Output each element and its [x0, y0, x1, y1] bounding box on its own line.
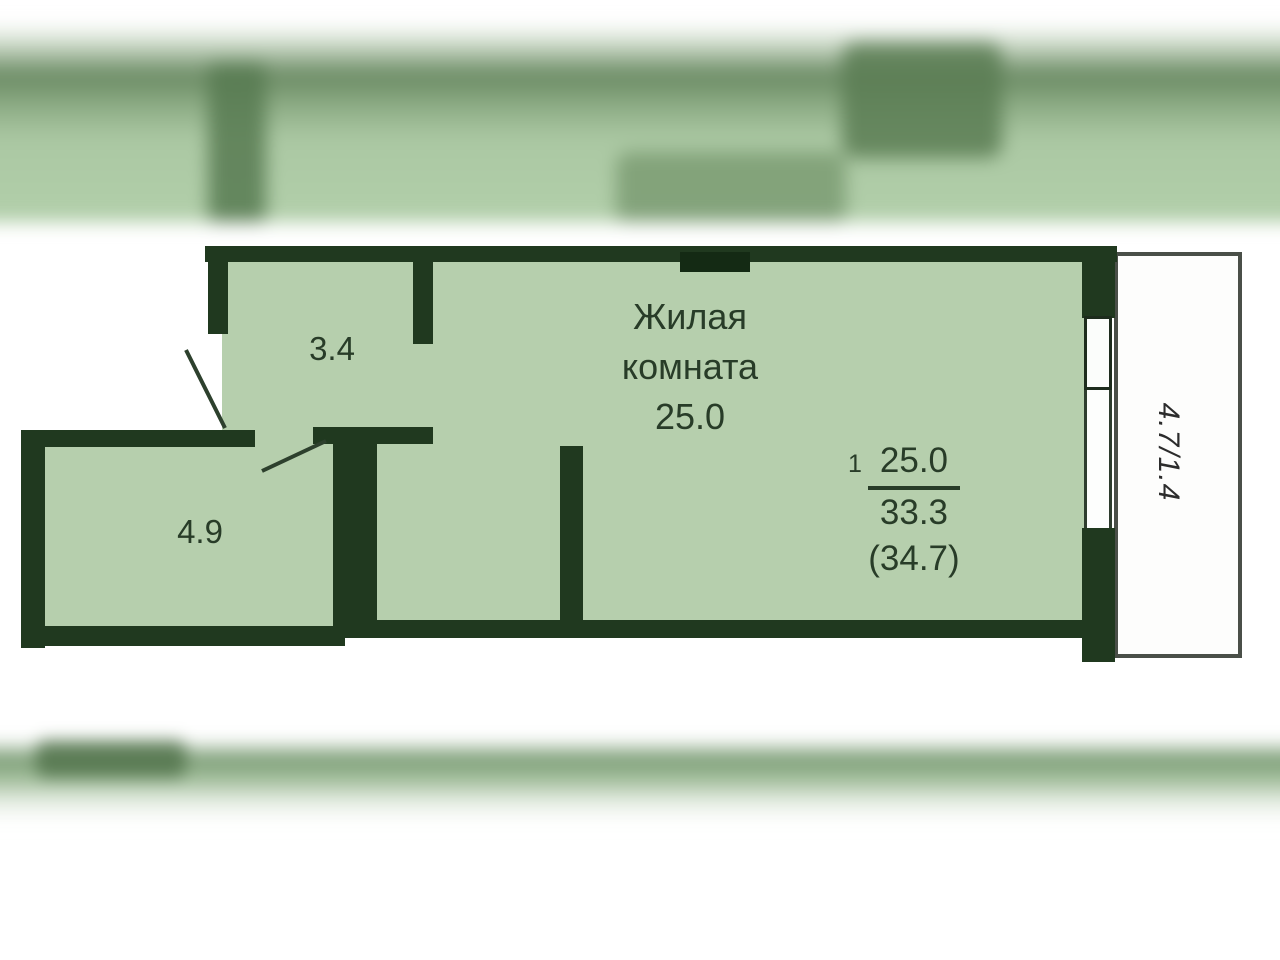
- wall-hall-right-stub: [413, 252, 433, 344]
- area-fraction: 25.0 33.3 (34.7): [868, 438, 960, 582]
- living-room-name-line2: комната: [545, 342, 835, 392]
- wall-mid-stub: [560, 446, 583, 624]
- area-summary: 1 25.0 33.3 (34.7): [848, 438, 960, 582]
- total-area-with-balcony-value: (34.7): [868, 536, 959, 582]
- living-room-area: 25.0: [545, 392, 835, 442]
- wall-top: [205, 246, 1117, 262]
- wall-bathroom-bottom: [21, 626, 345, 646]
- wall-bottom: [345, 620, 1115, 638]
- balcony-door-opening: [1084, 390, 1112, 528]
- wall-right-lower: [1082, 528, 1115, 662]
- total-area-value: 33.3: [880, 490, 948, 536]
- wall-bathroom-left: [21, 430, 45, 648]
- hall-area-label: 3.4: [272, 330, 392, 368]
- floor-plan: Жилая комната 25.0 3.4 4.9 1 25.0 33.3 (…: [0, 0, 1280, 960]
- wall-t-horizontal: [313, 427, 433, 444]
- wall-bathroom-top: [21, 430, 255, 447]
- window-symbol: [1084, 316, 1112, 390]
- entrance-door-swing-line: [186, 350, 225, 428]
- wall-t-vertical: [333, 443, 377, 630]
- wall-entry-left: [208, 246, 228, 334]
- wall-right-upper: [1082, 246, 1115, 318]
- living-room-name-line1: Жилая: [545, 292, 835, 342]
- screenshot-stage: Жилая комната 25.0 3.4 4.9 1 25.0 33.3 (…: [0, 0, 1280, 960]
- living-room-label: Жилая комната 25.0: [545, 292, 835, 442]
- balcony-area-label: 4.7/1.4: [1151, 403, 1185, 502]
- unit-number: 1: [848, 450, 862, 479]
- living-area-value: 25.0: [868, 438, 960, 490]
- bathroom-area-label: 4.9: [140, 513, 260, 551]
- wall-top-pier: [680, 252, 750, 272]
